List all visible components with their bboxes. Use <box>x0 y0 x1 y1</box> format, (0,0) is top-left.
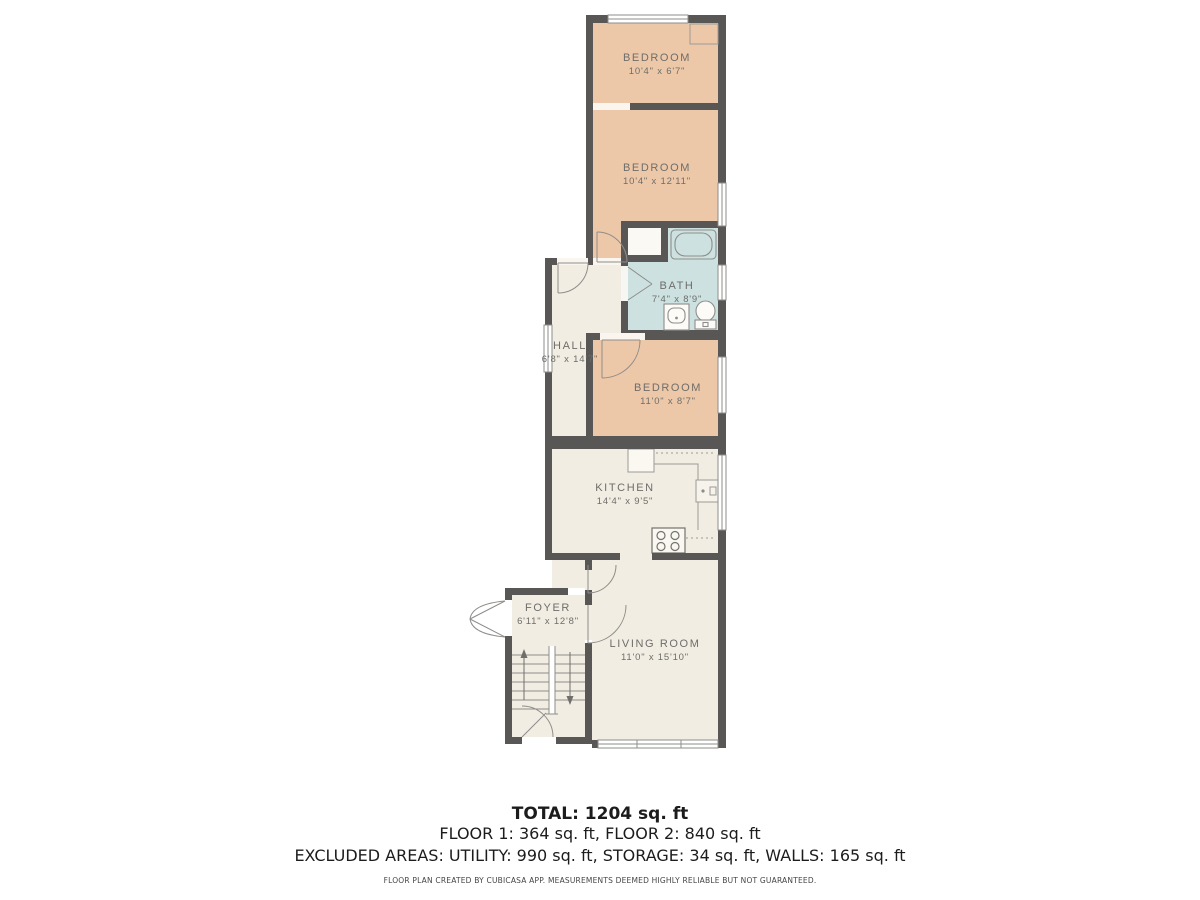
foyer-floor <box>512 595 585 646</box>
floor-plan-canvas <box>0 0 1200 900</box>
window-bedroom1-top <box>608 15 688 23</box>
window-kitchen-right <box>718 455 726 530</box>
window-bedroom2-right <box>718 183 726 226</box>
wall-kitchen-bottom-right <box>652 553 726 560</box>
wall-bed3-left <box>586 333 593 443</box>
wall-kitchen-left <box>545 449 552 560</box>
appliance-knob <box>701 489 704 492</box>
room-floors <box>512 23 718 740</box>
stove-icon <box>652 528 685 553</box>
opening-hall-top <box>557 258 588 265</box>
floor-areas-text: FLOOR 1: 364 sq. ft, FLOOR 2: 840 sq. ft <box>0 824 1200 843</box>
wall-foyer-top <box>505 588 568 595</box>
living-room-floor <box>592 560 718 740</box>
bathtub-icon <box>671 230 716 259</box>
hall-nook-floor <box>586 265 621 333</box>
wall-stairs-right <box>585 643 592 744</box>
opening-bath-door <box>621 266 628 301</box>
closet-floor <box>628 228 661 255</box>
bedroom-3-floor <box>593 340 718 436</box>
wall-bed2-bottom <box>621 221 718 228</box>
excluded-areas-text: EXCLUDED AREAS: UTILITY: 990 sq. ft, STO… <box>0 846 1200 865</box>
wall-closet-bottom <box>628 255 668 262</box>
kitchen-sink-appliance <box>696 480 718 502</box>
floor-plan-page: BEDROOM 10'4" x 6'7" BEDROOM 10'4" x 12'… <box>0 0 1200 900</box>
bedroom-2-floor <box>593 110 718 221</box>
window-bath-right <box>718 265 726 300</box>
opening-entry-door <box>505 600 512 636</box>
wall-floor-divider <box>545 436 726 449</box>
opening-bed1-bed2 <box>593 103 630 110</box>
wall-left-upper <box>586 15 593 265</box>
bedroom-1-floor <box>593 23 718 103</box>
disclaimer-text: FLOOR PLAN CREATED BY CUBICASA APP. MEAS… <box>0 876 1200 885</box>
window-hall-left <box>544 325 552 372</box>
window-living-bottom <box>598 740 718 748</box>
toilet-icon <box>695 301 716 329</box>
kitchen-living-opening <box>620 553 652 560</box>
opening-bed3-top <box>600 333 645 340</box>
bath-sink-icon <box>664 304 689 330</box>
window-bedroom3-right <box>718 357 726 413</box>
wall-kitchen-bottom-left <box>545 553 620 560</box>
door-arc-entry <box>470 601 505 637</box>
opening-basement-door <box>522 737 556 744</box>
total-area-text: TOTAL: 1204 sq. ft <box>0 804 1200 824</box>
kitchen-duct <box>628 449 654 472</box>
